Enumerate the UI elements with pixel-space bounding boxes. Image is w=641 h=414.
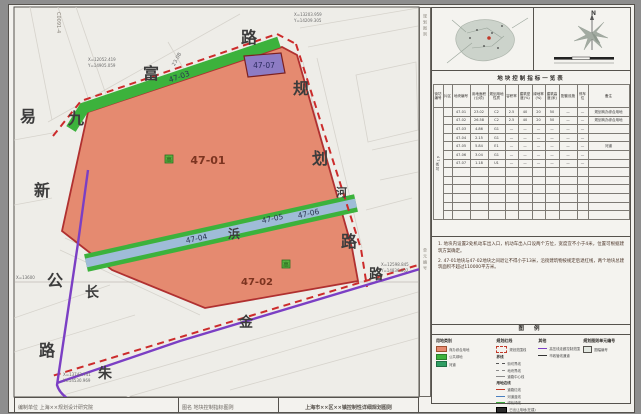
coordinate-label: X=12052.419 xyxy=(88,57,116,62)
table-cell: — xyxy=(577,116,588,125)
table-cell: — xyxy=(518,142,532,151)
table-row: 47-0226.58C22.5402050——规划商办综合用地 xyxy=(433,116,629,125)
strip-label-bottom: 单元编号 xyxy=(422,248,428,272)
table-cell: 23.02 xyxy=(470,108,488,117)
table-empty-row xyxy=(433,211,629,220)
table-cell: 1.18 xyxy=(470,159,488,168)
table-cell xyxy=(452,202,470,211)
legend-swatch-box-small-icon xyxy=(583,346,592,353)
table-cell xyxy=(518,211,532,220)
table-cell xyxy=(452,185,470,194)
table-cell: — xyxy=(577,125,588,134)
table-row: 47-042.15G1—————— xyxy=(433,133,629,142)
legend-group: 规划图则单元编号图幅编号 xyxy=(583,338,628,414)
table-cell: 20 xyxy=(532,108,545,117)
table-cell xyxy=(545,193,559,202)
legend-item-label: 商办综合用地 xyxy=(449,347,469,352)
table-col-header: 规划用地性质 xyxy=(488,85,505,108)
legend-item-label: 已出让用地(在建) xyxy=(509,407,535,412)
coordinate-label: Y=14209.305 xyxy=(293,18,322,23)
table-cell xyxy=(470,168,488,177)
legend-swatch-swatch-orange-icon xyxy=(436,346,447,352)
table-cell: 3.04 xyxy=(470,150,488,159)
table-cell xyxy=(505,193,518,202)
table-cell xyxy=(588,125,629,134)
table-cell xyxy=(532,168,545,177)
legend-item: 高压线走廊控制范围 xyxy=(538,346,580,351)
table-cell: — xyxy=(577,159,588,168)
table-cell: — xyxy=(559,125,577,134)
legend-group: 其他高压线走廊控制范围市政管线通道 xyxy=(538,338,583,414)
table-cell: 5.84 xyxy=(470,142,488,151)
table-cell xyxy=(488,202,505,211)
table-cell: 40 xyxy=(518,108,532,117)
legend-item: 规划范围线 xyxy=(496,346,535,353)
table-col-header: 街坊编号 xyxy=(433,85,443,108)
table-cell: 50 xyxy=(545,108,559,117)
table-cell: — xyxy=(545,133,559,142)
table-cell: G1 xyxy=(488,125,505,134)
table-col-header: 停车位 xyxy=(577,85,588,108)
road-char: 易 xyxy=(20,107,36,126)
title-block-panel: N 地块控制指标一览表 街坊编号片区地块编号用地面积(公顷)规划用地性质容积率建… xyxy=(431,7,631,404)
location-inset-map xyxy=(432,8,534,70)
table-cell: 47-04 xyxy=(452,133,470,142)
road-char: 路 xyxy=(39,341,56,360)
table-cell: — xyxy=(532,142,545,151)
table-cell xyxy=(488,168,505,177)
table-cell xyxy=(577,168,588,177)
table-row: 47街坊47-0123.02C22.5402050——规划商办综合用地 xyxy=(433,108,629,117)
legend-item-label: 道路红线 xyxy=(507,387,521,392)
table-cell: 47-05 xyxy=(452,142,470,151)
legend-swatch-line-dark-icon xyxy=(538,355,547,356)
table-cell xyxy=(443,211,452,220)
table-col-header: 建筑高度(米) xyxy=(545,85,559,108)
coordinate-label: Y=14836.802 xyxy=(380,268,409,273)
table-cell xyxy=(577,193,588,202)
note-line: 1. 地块内设置2处机动车出入口，机动车出入口设两个方位，宽度宜不小于4米，位置… xyxy=(438,242,624,256)
table-cell xyxy=(559,168,577,177)
legend-box: 图 例 用地类别商办综合用地公共绿地河道规划红线规划范围线界线街坊界线地块界线道… xyxy=(432,325,630,407)
legend-item-label: 地块界线 xyxy=(507,368,521,373)
table-cell: — xyxy=(559,159,577,168)
table-cell xyxy=(559,193,577,202)
table-cell xyxy=(588,211,629,220)
north-arrow-box: N xyxy=(534,8,631,70)
legend-item-label: 河道 xyxy=(449,362,456,367)
table-cell xyxy=(545,185,559,194)
table-cell xyxy=(443,142,452,151)
table-cell xyxy=(443,168,452,177)
table-empty-row xyxy=(433,193,629,202)
legend-item: 图幅编号 xyxy=(583,346,625,353)
table-block-label: 47街坊 xyxy=(433,108,443,220)
table-cell xyxy=(470,211,488,220)
table-empty-row xyxy=(433,185,629,194)
legend-item-label: 规划范围线 xyxy=(509,347,526,352)
table-cell xyxy=(559,211,577,220)
table-cell: 47-02 xyxy=(452,116,470,125)
table-cell xyxy=(443,116,452,125)
legend-group: 用地类别商办综合用地公共绿地河道 xyxy=(436,338,496,414)
table-col-header: 配套设施 xyxy=(559,85,577,108)
table-col-header: 用地面积(公顷) xyxy=(470,85,488,108)
legend-item: 道路红线 xyxy=(496,387,535,392)
table-cell xyxy=(518,193,532,202)
table-cell xyxy=(452,211,470,220)
drawing-title-bar: 编制单位 上海××规划设计研究院 图名 地块控制指标图则 上海市××区××镇控制… xyxy=(14,397,419,413)
table-cell xyxy=(545,202,559,211)
legend-item: 绿化绿线 xyxy=(496,400,535,405)
table-cell: — xyxy=(532,125,545,134)
parcel-label-47-01: 47-01 xyxy=(190,154,225,167)
table-cell xyxy=(518,176,532,185)
legend-item: 市政管线通道 xyxy=(538,353,580,358)
table-cell xyxy=(588,202,629,211)
table-cell xyxy=(452,168,470,177)
table-cell: — xyxy=(532,150,545,159)
table-title: 地块控制指标一览表 xyxy=(432,74,630,82)
table-cell xyxy=(577,211,588,220)
table-cell: 47-07 xyxy=(452,159,470,168)
table-cell: 26.58 xyxy=(470,116,488,125)
table-cell xyxy=(443,133,452,142)
table-cell: — xyxy=(545,159,559,168)
table-cell xyxy=(505,185,518,194)
table-cell xyxy=(443,176,452,185)
table-cell: 河道 xyxy=(588,142,629,151)
table-col-header: 片区 xyxy=(443,85,452,108)
table-cell: — xyxy=(559,150,577,159)
table-cell xyxy=(443,150,452,159)
legend-item: 地块界线 xyxy=(496,368,535,373)
legend-item: 商办综合用地 xyxy=(436,346,493,352)
legend-group-title: 规划红线 xyxy=(496,338,535,344)
legend-item: 道路中心线 xyxy=(496,374,535,379)
table-cell xyxy=(488,176,505,185)
table-cell xyxy=(532,176,545,185)
table-cell: 47-06 xyxy=(452,150,470,159)
table-cell xyxy=(488,211,505,220)
table-cell xyxy=(505,202,518,211)
road-char: 新 xyxy=(34,181,50,200)
legend-item-label: 市政管线通道 xyxy=(549,353,569,358)
table-cell: — xyxy=(559,108,577,117)
road-char: 公 xyxy=(47,271,63,290)
road-char: 九 xyxy=(67,109,84,128)
road-char: 规 xyxy=(293,79,309,98)
road-char: 路 xyxy=(341,232,358,251)
table-cell xyxy=(559,185,577,194)
table-cell: 2.5 xyxy=(505,108,518,117)
table-cell xyxy=(518,185,532,194)
site-marker xyxy=(487,36,491,40)
legend-item-label: 河道蓝线 xyxy=(507,394,521,399)
road-char: 富 xyxy=(143,64,159,83)
table-cell: — xyxy=(505,150,518,159)
table-cell: — xyxy=(545,142,559,151)
table-cell xyxy=(588,176,629,185)
table-cell: 20 xyxy=(532,116,545,125)
table-col-header: 容积率 xyxy=(505,85,518,108)
table-cell xyxy=(443,202,452,211)
table-cell: U1 xyxy=(488,159,505,168)
table-cell: 4.86 xyxy=(470,125,488,134)
control-indicator-table: 街坊编号片区地块编号用地面积(公顷)规划用地性质容积率建筑密度(%)绿地率(%)… xyxy=(433,84,630,220)
table-cell xyxy=(443,193,452,202)
wind-rose-icon xyxy=(574,22,608,50)
table-cell xyxy=(577,176,588,185)
table-cell xyxy=(443,125,452,134)
table-cell: — xyxy=(559,116,577,125)
road-char: 金 xyxy=(238,314,254,331)
coordinate-label: X=13600 xyxy=(16,275,35,280)
legend-swatch-line-purple-icon xyxy=(538,348,547,349)
table-cell xyxy=(470,202,488,211)
titlebar-cell-project: 上海市××区××镇控制性详细规划图则 xyxy=(279,398,418,412)
table-cell xyxy=(452,176,470,185)
table-col-header: 建筑密度(%) xyxy=(518,85,532,108)
table-cell: C2 xyxy=(488,116,505,125)
coordinate-label: Y=14530.969 xyxy=(62,378,91,383)
table-cell: — xyxy=(577,142,588,151)
table-cell xyxy=(443,108,452,117)
legend-subhead: 界线 xyxy=(496,355,535,360)
legend-item-label: 街坊界线 xyxy=(507,361,521,366)
table-cell: — xyxy=(577,150,588,159)
coordinate-label: X=13203.959 xyxy=(294,12,322,17)
table-cell xyxy=(545,176,559,185)
strip-label-top: 规划图则 xyxy=(422,14,428,38)
table-cell: 47-03 xyxy=(452,125,470,134)
table-cell: — xyxy=(532,133,545,142)
legend-swatch-line-dashdot-icon xyxy=(496,363,505,364)
road-char: 河 xyxy=(336,185,347,199)
legend-item: 河道蓝线 xyxy=(496,394,535,399)
facility-marker-char: 高 xyxy=(283,260,289,268)
legend-item: 公共绿地 xyxy=(436,354,493,360)
parcel-label-47-02: 47-02 xyxy=(241,277,273,288)
table-cell: G1 xyxy=(488,150,505,159)
legend-item-label: 绿化绿线 xyxy=(507,400,521,405)
table-col-header: 地块编号 xyxy=(452,85,470,108)
road-char: 浜 xyxy=(228,226,240,241)
table-cell xyxy=(588,193,629,202)
table-cell: 2.15 xyxy=(470,133,488,142)
legend-swatch-line-red-icon xyxy=(496,389,505,390)
table-cell xyxy=(588,159,629,168)
table-row: 47-034.86G1—————— xyxy=(433,125,629,134)
table-empty-row xyxy=(433,202,629,211)
coordinate-label: Y=14905.059 xyxy=(87,63,116,68)
table-cell xyxy=(518,202,532,211)
table-cell xyxy=(588,133,629,142)
table-cell xyxy=(443,159,452,168)
table-cell xyxy=(470,176,488,185)
table-cell xyxy=(470,185,488,194)
table-row: 47-071.18U1—————— xyxy=(433,159,629,168)
table-cell xyxy=(577,202,588,211)
titlebar-cell-agency: 编制单位 上海××规划设计研究院 xyxy=(15,398,179,412)
sheet-code-vertical: C0091-4 xyxy=(55,12,61,33)
table-row: 47-055.84E1——————河道 xyxy=(433,142,629,151)
table-cell: — xyxy=(518,125,532,134)
note-line: 2. 47-01地块与47-02地块之间退让不得小于13米，沿街建筑物按规定后退… xyxy=(438,259,624,273)
road-char: 路 xyxy=(241,28,258,47)
legend-swatch-line-thin-icon xyxy=(496,376,505,377)
notes-box: 1. 地块内设置2处机动车出入口，机动车出入口设两个方位，宽度宜不小于4米，位置… xyxy=(432,237,630,325)
table-cell xyxy=(470,193,488,202)
legend-item-label: 高压线走廊控制范围 xyxy=(549,346,580,351)
table-cell xyxy=(588,185,629,194)
legend-item: 街坊界线 xyxy=(496,361,535,366)
table-col-header: 绿地率(%) xyxy=(532,85,545,108)
titlebar-cell-sheet: 图名 地块控制指标图则 xyxy=(179,398,279,412)
table-cell xyxy=(559,202,577,211)
table-cell xyxy=(505,168,518,177)
legend-group: 规划红线规划范围线界线街坊界线地块界线道路中心线用地边线道路红线河道蓝线绿化绿线… xyxy=(496,338,538,414)
table-cell xyxy=(505,176,518,185)
table-cell xyxy=(588,150,629,159)
table-cell xyxy=(532,185,545,194)
legend-swatch-line-green-icon xyxy=(496,402,505,403)
table-cell xyxy=(588,168,629,177)
table-cell xyxy=(452,193,470,202)
table-cell: — xyxy=(559,133,577,142)
table-cell: — xyxy=(518,150,532,159)
table-cell xyxy=(545,168,559,177)
legend-swatch-dash-rect-icon xyxy=(496,346,507,353)
table-cell: — xyxy=(545,150,559,159)
legend-item-label: 公共绿地 xyxy=(449,354,463,359)
table-cell: — xyxy=(518,133,532,142)
table-cell: — xyxy=(505,125,518,134)
table-cell: 47-01 xyxy=(452,108,470,117)
table-col-header: 备注 xyxy=(588,85,629,108)
table-cell: C2 xyxy=(488,108,505,117)
table-cell xyxy=(488,185,505,194)
table-cell: 40 xyxy=(518,116,532,125)
legend-swatch-swatch-black-icon xyxy=(496,407,507,413)
table-cell: 50 xyxy=(545,116,559,125)
north-label: N xyxy=(591,10,596,17)
control-table-box: 地块控制指标一览表 街坊编号片区地块编号用地面积(公顷)规划用地性质容积率建筑密… xyxy=(432,71,630,237)
legend-group-title: 用地类别 xyxy=(436,338,493,344)
legend-item-label: 道路中心线 xyxy=(507,374,524,379)
coordinate-label: X=13743.741 xyxy=(63,372,91,377)
side-strip: 规划图则 单元编号 xyxy=(419,7,431,397)
location-blob xyxy=(456,20,515,61)
table-cell xyxy=(532,202,545,211)
legend-group-title: 其他 xyxy=(538,338,580,344)
road-char: 长 xyxy=(85,284,100,301)
legend-swatch-swatch-green-icon xyxy=(436,354,447,360)
panel-top-box: N xyxy=(432,8,630,71)
parcel-label-47-07: 47-07 xyxy=(253,61,275,70)
table-cell: — xyxy=(505,142,518,151)
table-cell xyxy=(532,193,545,202)
legend-title: 图 例 xyxy=(432,325,630,335)
table-cell xyxy=(505,211,518,220)
table-cell xyxy=(532,211,545,220)
legend-item: 河道 xyxy=(436,361,493,367)
legend-swatch-line-blue-icon xyxy=(496,396,505,397)
table-cell: — xyxy=(505,133,518,142)
legend-swatch-swatch-teal-icon xyxy=(436,361,447,367)
table-cell xyxy=(559,176,577,185)
table-cell: — xyxy=(577,133,588,142)
legend-swatch-line-dash-icon xyxy=(496,370,505,371)
table-cell: — xyxy=(532,159,545,168)
road-char: 朱 xyxy=(98,365,113,382)
table-cell: — xyxy=(518,159,532,168)
coordinate-label: X=12598.845 xyxy=(381,262,409,267)
table-cell: 规划商办综合用地 xyxy=(588,108,629,117)
legend-group-title: 规划图则单元编号 xyxy=(583,338,625,344)
table-cell xyxy=(488,193,505,202)
table-cell: — xyxy=(545,125,559,134)
table-cell: — xyxy=(505,159,518,168)
table-cell xyxy=(443,185,452,194)
table-empty-row xyxy=(433,176,629,185)
legend-subhead: 用地边线 xyxy=(496,381,535,386)
table-cell: E1 xyxy=(488,142,505,151)
table-cell xyxy=(518,168,532,177)
legend-item: 已出让用地(在建) xyxy=(496,407,535,413)
scale-bar xyxy=(554,57,614,63)
table-cell: — xyxy=(577,108,588,117)
road-char: 划 xyxy=(312,149,328,168)
table-row: 47-063.04G1—————— xyxy=(433,150,629,159)
table-cell: — xyxy=(559,142,577,151)
table-cell: G1 xyxy=(488,133,505,142)
table-cell: 规划商办综合用地 xyxy=(588,116,629,125)
table-cell xyxy=(545,211,559,220)
table-cell: 2.5 xyxy=(505,116,518,125)
legend-item-label: 图幅编号 xyxy=(594,347,608,352)
table-empty-row xyxy=(433,168,629,177)
facility-marker-char: 高 xyxy=(166,155,172,163)
table-cell xyxy=(577,185,588,194)
